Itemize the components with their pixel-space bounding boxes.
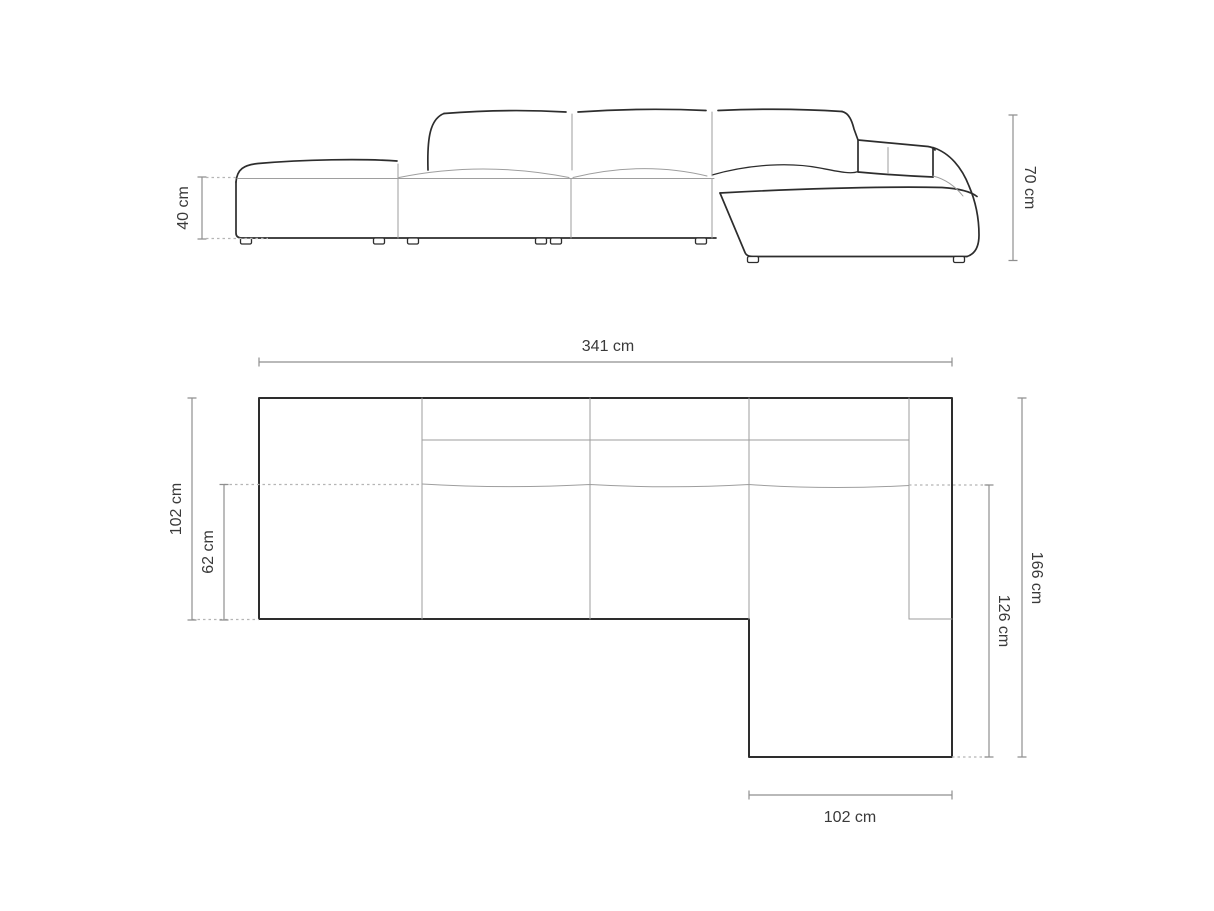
dimension-label-70cm: 70 cm [1021,166,1038,210]
leg [374,238,385,244]
dimension-label-102cm-bottom: 102 cm [824,809,876,826]
plan-seat-cushion-front-line [422,484,909,488]
dimension-label-166cm: 166 cm [1028,552,1045,604]
dimension-label-62cm: 62 cm [200,530,217,574]
backrest-top-edge [444,109,842,113]
plan-outline [259,398,952,757]
dimension-total-width: 341 cm [259,338,952,367]
dimension-line-70cm [1009,115,1018,261]
dimension-chaise-extension: 126 cm [985,485,1012,757]
backrest-right-edge [842,112,858,141]
dimension-right-side-length: 166 cm [1018,398,1045,757]
leg [696,238,707,244]
dimension-line-126cm [985,485,994,757]
top-plan-view: 341 cm 102 cm 62 cm 166 cm 126 cm 102 cm [168,338,1045,826]
sofa-legs [241,238,965,263]
extension-lines-40cm [206,178,268,239]
backrest-left-edge [428,114,444,171]
dimension-line-102cm-left [188,398,197,620]
seat-cushion-2-curve [573,169,707,178]
front-elevation-view: 40 cm 70 cm [175,109,1038,262]
dimension-line-62cm [220,485,229,621]
seat-cushion-1-curve [399,169,569,178]
leg [408,238,419,244]
leg [551,238,562,244]
sofa-dimension-diagram: 40 cm 70 cm 341 cm 102 cm [0,0,1214,911]
chaise-bottom-and-slant-edge [720,193,967,257]
dimension-label-126cm: 126 cm [995,595,1012,647]
dimension-line-40cm [198,177,207,239]
sofa-back-right-corner [933,148,979,257]
under-armrest-curve [933,176,963,196]
leg [954,257,965,263]
dimension-line-341cm [259,358,952,367]
dimension-label-341cm: 341 cm [582,338,634,355]
leg [748,257,759,263]
armrest-bottom-edge [858,172,933,177]
dimension-seat-height: 40 cm [175,177,268,239]
dimension-body-depth: 102 cm [168,398,196,620]
dimension-chaise-width: 102 cm [749,791,952,827]
chaise-base-top-edge [720,187,977,196]
leg [536,238,547,244]
dimension-seat-depth: 62 cm [200,485,228,621]
dimension-line-102cm-bottom [749,791,952,800]
dimension-label-102cm-left: 102 cm [168,483,185,535]
sofa-left-and-bottom-edge [236,182,716,238]
dimension-total-height: 70 cm [1009,115,1038,261]
chaise-seat-cushion-curve [712,165,858,175]
armrest-top-edge [858,140,935,150]
dimension-line-166cm [1018,398,1027,757]
dimension-label-40cm: 40 cm [175,186,192,230]
